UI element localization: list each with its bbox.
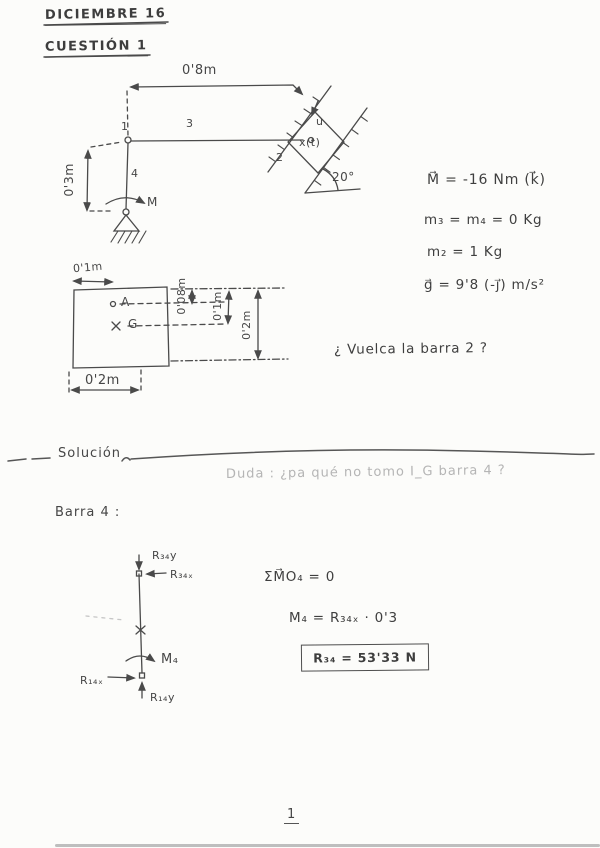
given-masses34: m₃ = m₄ = 0 Kg [424, 213, 542, 228]
d1-block-pos-label: x(t) [299, 137, 320, 149]
given-moment: M⃗ = -16 Nm (k⃗) [427, 173, 546, 188]
d2-dim-right-full-label: 0'2m [241, 305, 253, 345]
d2-dim-bottom-label: 0'2m [85, 374, 120, 388]
d1-block-label: 2 [276, 152, 284, 164]
d1-bar3-label: 3 [186, 118, 194, 130]
d1-rail-dir-label: u [316, 116, 323, 128]
given-mass2: m₂ = 1 Kg [427, 245, 503, 260]
d1-node1-label: 1 [121, 121, 129, 133]
d2-dim-right-mid-label: 0'1m [212, 286, 224, 326]
fbd-m4-label: M₄ [161, 653, 178, 667]
d1-bar4-label: 4 [131, 168, 139, 180]
scan-edge-artifact [55, 844, 600, 847]
d1-dim-left-label: 0'3m [62, 160, 76, 200]
eq-m4: M₄ = R₃₄ₓ · 0'3 [289, 611, 398, 626]
d1-angle-label: 20° [332, 171, 355, 184]
fbd-r14x-label: R₁₄ₓ [80, 675, 103, 687]
fbd-r34x-label: R₃₄ₓ [170, 569, 193, 581]
d2-dim-right-small-label: 0'08m [176, 271, 188, 321]
page-date-title: DICIEMBRE 16 [45, 7, 166, 26]
sketch-layer [0, 0, 600, 848]
d2-dim-top-label: 0'1m [73, 261, 104, 276]
d1-moment-label: M [147, 196, 158, 209]
d1-dim-top-label: 0'8m [182, 64, 217, 78]
d2-point-g-label: G [128, 318, 138, 331]
given-gravity: g⃗ = 9'8 (-j⃗) m/s² [424, 278, 545, 293]
question-text: ¿ Vuelca la barra 2 ? [334, 341, 488, 357]
d2-point-a-label: A [121, 296, 130, 309]
eq-sum-moments: ΣM⃗O₄ = 0 [264, 570, 335, 585]
page-number: 1 [284, 808, 299, 824]
fbd-r34y-label: R₃₄y [152, 550, 177, 562]
question-title: CUESTIÓN 1 [45, 39, 148, 58]
solution-title: Solución [58, 447, 121, 461]
notebook-page: DICIEMBRE 16 CUESTIÓN 1 0'8m 0'3m 1 3 4 … [0, 0, 600, 848]
result-box: R₃₄ = 53'33 N [301, 643, 429, 671]
diagram1-sketch [87, 85, 367, 243]
fbd-r14y-label: R₁₄y [150, 692, 175, 704]
fbd-title: Barra 4 : [55, 506, 120, 520]
